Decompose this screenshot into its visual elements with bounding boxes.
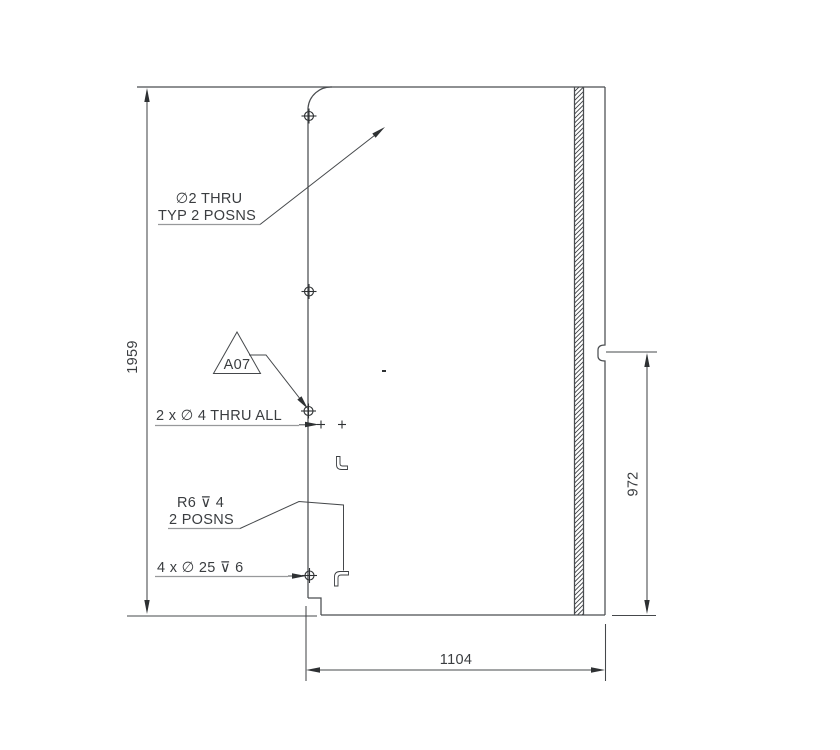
note-thru-holes: 2 x ∅ 4 THRU ALL [155, 408, 319, 427]
note-counterbore-holes: 4 x ∅ 25 ⊽ 6 [155, 560, 306, 579]
leader-arrowhead [297, 396, 308, 409]
dimension-text-overall-height: 1959 [125, 340, 141, 373]
arrowhead-down [644, 600, 649, 614]
leader-arrowhead [305, 422, 319, 427]
dimension-text-overall-width: 1104 [440, 652, 472, 668]
leader-line [249, 355, 301, 400]
note-text-line2: TYP 2 POSNS [158, 208, 256, 224]
datum-flag: A07 [214, 332, 309, 409]
note-text: 2 x ∅ 4 THRU ALL [156, 408, 282, 424]
dimension-overall-height: 1959 [125, 88, 317, 616]
hatch-fill [575, 87, 584, 615]
drawing-canvas: 1959 972 1104 ∅2 THRU TYP 2 POSNS A07 2 … [0, 0, 840, 750]
leader-line [240, 502, 344, 571]
note-small-holes: ∅2 THRU TYP 2 POSNS [158, 127, 385, 225]
corner-scallop-notch [308, 87, 332, 108]
radius-relief-features [335, 457, 349, 587]
arrowhead-right [591, 667, 605, 672]
dimension-right-height: 972 [606, 352, 657, 616]
bottom-left-step-notch [308, 598, 321, 615]
note-text-line1: R6 ⊽ 4 [177, 495, 224, 511]
panel-engineering-drawing: 1959 972 1104 ∅2 THRU TYP 2 POSNS A07 2 … [0, 0, 840, 750]
note-text-line1: ∅2 THRU [176, 191, 243, 207]
note-text-line2: 2 POSNS [169, 512, 234, 528]
hole-marker [302, 284, 317, 299]
l-relief-feature-upper [337, 457, 348, 470]
dimension-text-right-height: 972 [626, 471, 642, 496]
arrowhead-up [144, 88, 149, 102]
arrowhead-down [144, 600, 149, 614]
arrowhead-up [644, 353, 649, 367]
hole-marker [302, 109, 317, 124]
small-center-mark [338, 421, 346, 429]
l-relief-feature-lower [335, 572, 349, 587]
panel-outline [137, 87, 605, 615]
hole-marker [301, 404, 316, 419]
leader-arrowhead [292, 573, 306, 578]
note-text: 4 x ∅ 25 ⊽ 6 [157, 560, 244, 576]
panel-right-edge [598, 87, 605, 615]
arrowhead-left [306, 667, 320, 672]
hatched-edge-strip [575, 87, 584, 615]
dimension-overall-width: 1104 [306, 606, 606, 681]
hole-marker [302, 568, 317, 583]
leader-line [260, 134, 377, 225]
datum-flag-text: A07 [224, 357, 251, 373]
